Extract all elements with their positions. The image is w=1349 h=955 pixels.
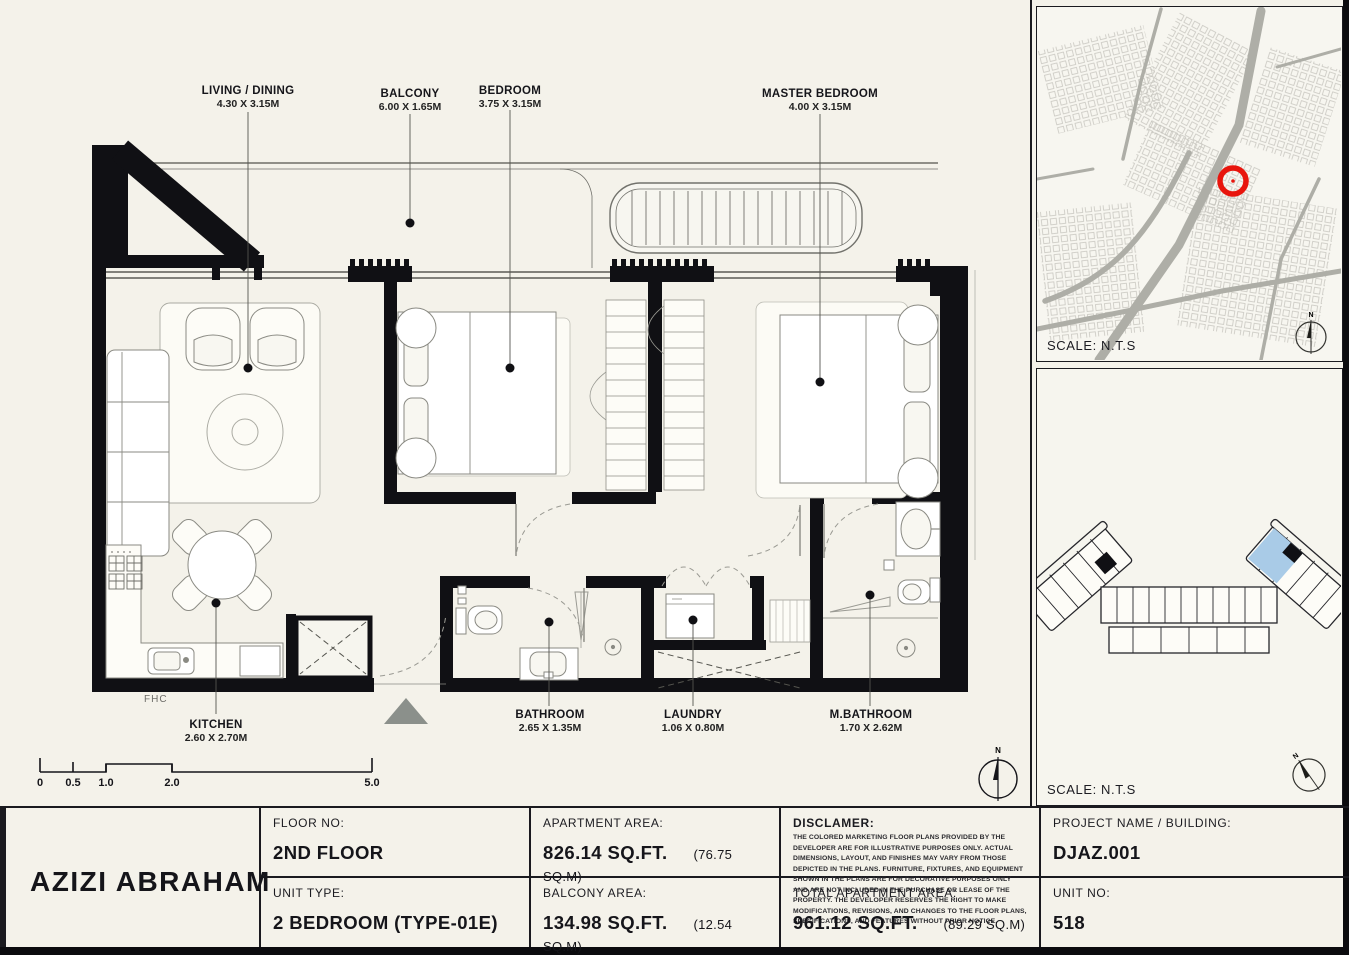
room-label-master: MASTER BEDROOM4.00 X 3.15M	[720, 87, 920, 115]
floor-no-value: 2ND FLOOR	[273, 842, 517, 864]
apartment-area-value: 826.14 SQ.FT.	[543, 842, 667, 863]
location-map: N	[1037, 7, 1341, 360]
key-plan-panel: N SCALE: N.T.S	[1036, 368, 1343, 806]
scale-tick: 0	[37, 777, 43, 789]
disclaimer-cell: DISCLAMER: THE COLORED MARKETING FLOOR P…	[781, 808, 1039, 876]
floor-plan-sheet: N LIVING / DINING4.30 X 3.15M BALCONY6.0…	[0, 0, 1349, 955]
door-swings	[516, 504, 800, 556]
total-area-label: TOTAL APARTMENT AREA:	[793, 886, 1027, 900]
unit-type-value: 2 BEDROOM (TYPE-01E)	[273, 912, 517, 934]
unit-no-label: UNIT NO:	[1053, 886, 1329, 900]
unit-type-cell: UNIT TYPE: 2 BEDROOM (TYPE-01E)	[261, 878, 529, 946]
north-compass-plan: N	[979, 746, 1017, 801]
scale-tick: 5.0	[364, 777, 379, 789]
total-area-value: 961.12 SQ.FT.	[793, 912, 917, 933]
balcony-louver-element	[610, 183, 862, 253]
door-leaves	[516, 504, 800, 556]
bedroom-furniture	[396, 308, 570, 478]
location-map-panel: N SCALE: N.T.S	[1036, 6, 1343, 362]
apartment-area-label: APARTMENT AREA:	[543, 816, 767, 830]
keyplan-scale-note: SCALE: N.T.S	[1047, 782, 1136, 797]
svg-text:N: N	[1308, 312, 1313, 319]
entrance-door	[374, 612, 446, 684]
unit-type-label: UNIT TYPE:	[273, 886, 517, 900]
room-label-mbathroom: M.BATHROOM1.70 X 2.62M	[771, 708, 971, 736]
project-label: PROJECT NAME / BUILDING:	[1053, 816, 1329, 830]
room-label-bedroom: BEDROOM3.75 X 3.15M	[410, 84, 610, 112]
total-area-metric: (89.29 SQ.M)	[943, 917, 1025, 932]
unit-no-value: 518	[1053, 912, 1329, 934]
total-area-cell: TOTAL APARTMENT AREA: 961.12 SQ.FT.(89.2…	[781, 878, 1039, 946]
project-cell: PROJECT NAME / BUILDING: DJAZ.001	[1041, 808, 1341, 876]
room-label-kitchen: KITCHEN2.60 X 2.70M	[116, 718, 316, 746]
wardrobes	[590, 300, 704, 490]
scale-tick: 0.5	[65, 777, 80, 789]
svg-text:N: N	[995, 746, 1001, 755]
balcony-area-cell: BALCONY AREA: 134.98 SQ.FT.(12.54 SQ.M)	[531, 878, 779, 946]
laundry-fixtures	[662, 567, 810, 642]
bathroom-fixtures	[456, 586, 621, 680]
page-edge-right	[1343, 0, 1349, 955]
room-label-laundry: LAUNDRY1.06 X 0.80M	[593, 708, 793, 736]
balcony-area-value: 134.98 SQ.FT.	[543, 912, 667, 933]
floor-no-cell: FLOOR NO: 2ND FLOOR	[261, 808, 529, 876]
disclaimer-label: DISCLAMER:	[793, 816, 1027, 830]
shaft-kitchen	[296, 618, 370, 678]
map-scale-note: SCALE: N.T.S	[1047, 338, 1136, 353]
floor-plan-drawing: N	[0, 0, 1030, 806]
unit-no-cell: UNIT NO: 518	[1041, 878, 1341, 946]
entrance-arrow	[384, 698, 428, 724]
column-divider	[1030, 0, 1032, 808]
apartment-area-cell: APARTMENT AREA: 826.14 SQ.FT.(76.75 SQ.M…	[531, 808, 779, 876]
floor-no-label: FLOOR NO:	[273, 816, 517, 830]
balcony-area-label: BALCONY AREA:	[543, 886, 767, 900]
scale-bar	[40, 758, 372, 772]
brand-name: AZIZI ABRAHAM	[30, 866, 271, 898]
master-bedroom-furniture	[756, 302, 938, 498]
scale-tick: 1.0	[98, 777, 113, 789]
fhc-label: FHC	[144, 694, 168, 705]
master-bathroom-fixtures	[823, 502, 940, 657]
scale-tick: 2.0	[164, 777, 179, 789]
project-value: DJAZ.001	[1053, 842, 1329, 864]
key-plan: N	[1037, 369, 1341, 804]
